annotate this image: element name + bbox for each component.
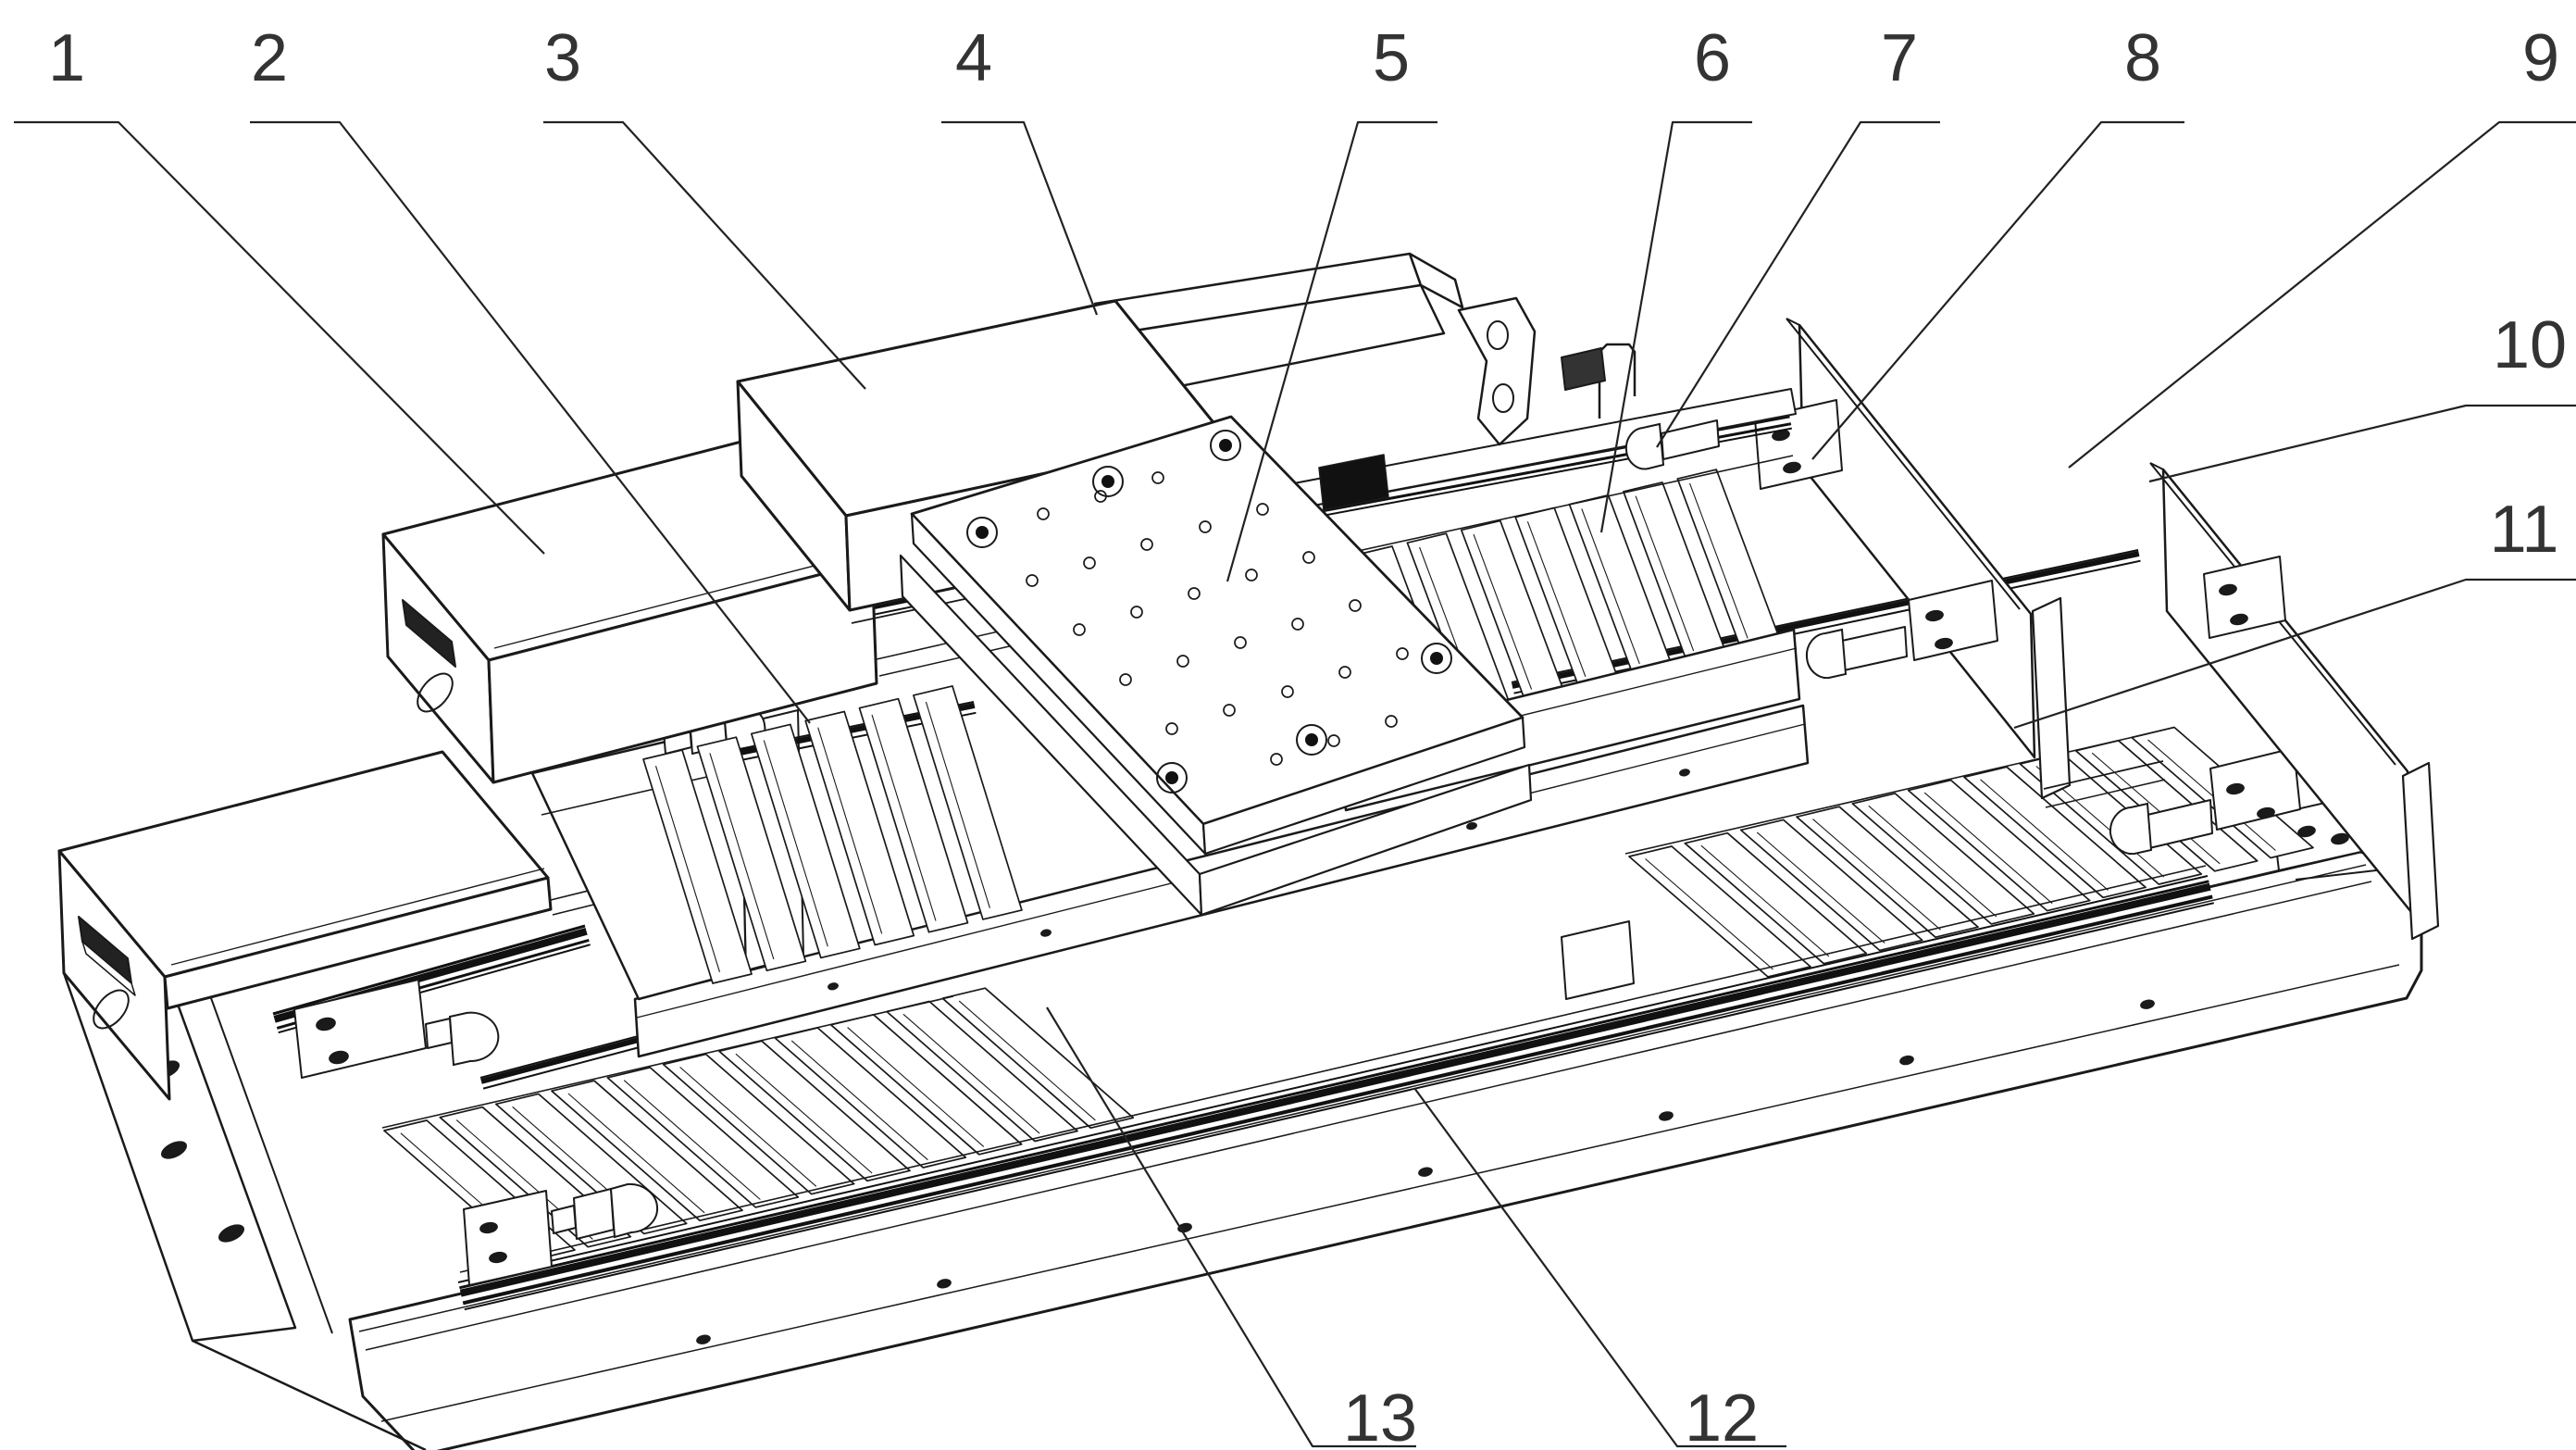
svg-text:6: 6 [1694, 21, 1731, 95]
svg-text:1: 1 [48, 21, 85, 95]
svg-text:10: 10 [2493, 308, 2567, 382]
svg-text:8: 8 [2124, 21, 2161, 95]
svg-text:9: 9 [2522, 21, 2559, 95]
svg-text:7: 7 [1881, 21, 1918, 95]
svg-text:12: 12 [1685, 1381, 1759, 1450]
svg-text:5: 5 [1373, 21, 1410, 95]
svg-text:3: 3 [544, 21, 581, 95]
svg-text:11: 11 [2490, 493, 2559, 567]
svg-text:2: 2 [251, 21, 288, 95]
svg-text:4: 4 [955, 21, 992, 95]
svg-text:13: 13 [1343, 1381, 1417, 1450]
